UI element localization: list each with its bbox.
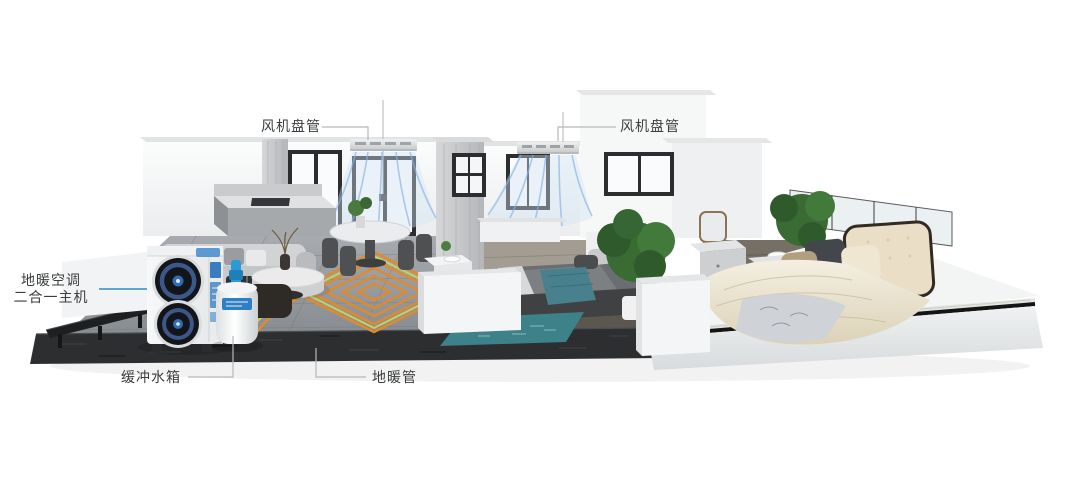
kitchen-cabinets	[214, 184, 336, 236]
low-wall-back	[480, 222, 560, 242]
callout-fan-coil-right: 风机盘管	[620, 118, 680, 135]
callout-main-unit: 地暖空调 二合一主机	[4, 272, 98, 306]
fan-top	[152, 255, 204, 307]
callout-main-unit-line1: 地暖空调	[4, 272, 98, 289]
scene-illustration	[0, 0, 1080, 504]
tank-label	[222, 298, 252, 310]
brand-sticker	[196, 248, 220, 257]
low-wall-mid	[636, 274, 710, 356]
callout-main-unit-line2: 二合一主机	[4, 289, 98, 306]
callout-fan-coil-left: 风机盘管	[261, 118, 321, 135]
vanity-mirror	[700, 212, 726, 242]
fan-coil-unit-right	[517, 142, 579, 154]
callout-floor-pipe: 地暖管	[372, 369, 417, 386]
low-wall-front	[418, 268, 521, 334]
fan-coil-unit-left	[350, 139, 417, 151]
callout-buffer-tank: 缓冲水箱	[121, 369, 181, 386]
hvac-cutaway-diagram: 风机盘管 风机盘管 地暖空调 二合一主机 缓冲水箱 地暖管	[0, 0, 1080, 504]
window	[604, 152, 674, 196]
window	[452, 153, 486, 197]
fan-bottom	[154, 300, 202, 348]
